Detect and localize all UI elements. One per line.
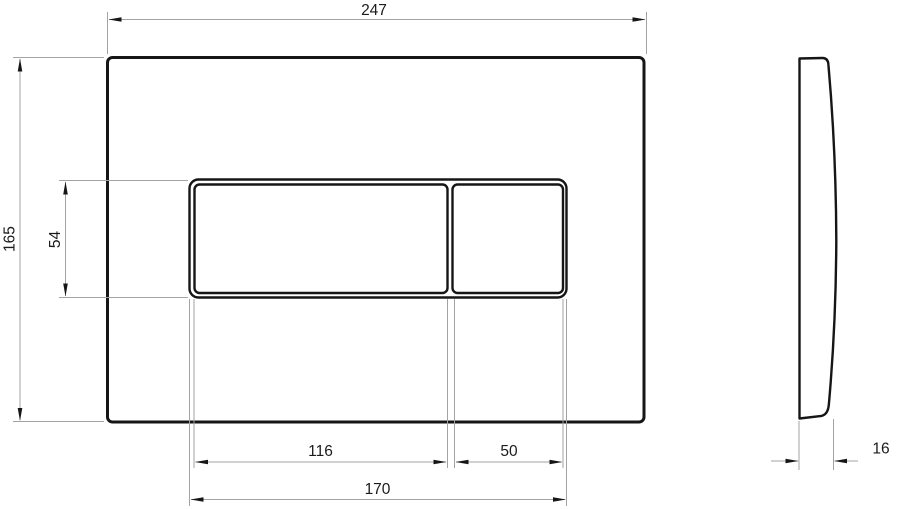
dim-plate-thickness: 16 [771,419,890,470]
dim-plate-width-label: 247 [361,2,387,19]
arrowhead-bottom [18,408,23,421]
dim-large-button-width-label: 116 [308,443,333,460]
side-profile-outline [800,58,837,419]
arrowhead-right [550,460,563,465]
arrowhead-left [786,459,799,464]
large-button-outline [195,185,448,294]
arrowhead-left [456,460,469,465]
arrowhead-right [434,460,447,465]
arrowhead-left [191,497,204,502]
dim-button-area-height-label: 54 [47,231,64,249]
drawing-canvas: 247 165 54 116 [0,0,900,509]
arrowhead-right [633,17,646,22]
dim-button-area-width-label: 170 [365,481,391,498]
technical-drawing: 247 165 54 116 [0,0,900,509]
arrowhead-bottom [63,284,68,297]
dim-plate-thickness-label: 16 [872,441,889,458]
arrowhead-right [553,497,566,502]
dim-plate-width: 247 [108,2,647,54]
side-view [800,58,837,419]
arrowhead-left [109,17,122,22]
arrowhead-right [834,459,847,464]
arrowhead-top [18,59,23,72]
dim-plate-height-label: 165 [2,226,19,252]
arrowhead-top [63,182,68,195]
dim-small-button-width-label: 50 [500,443,518,460]
arrowhead-left [195,460,208,465]
small-button-outline [453,185,564,294]
front-view [108,58,645,423]
